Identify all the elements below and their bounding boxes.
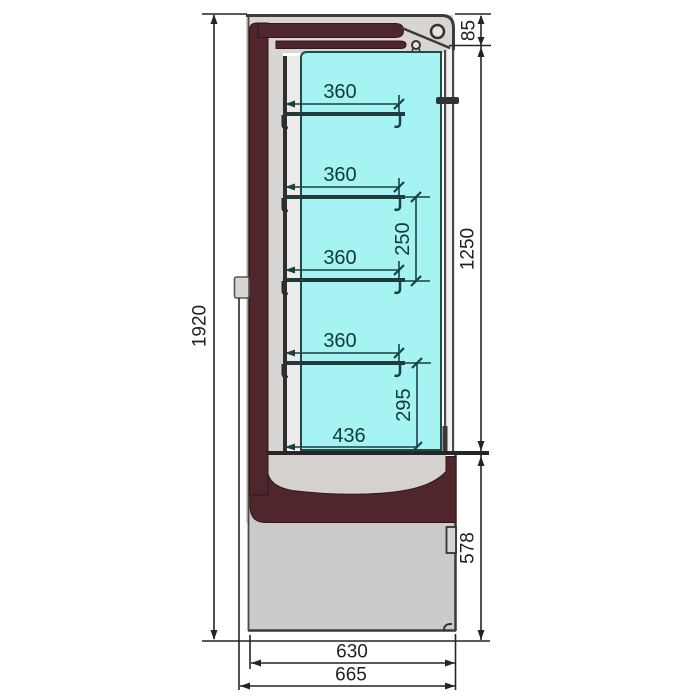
cabinet-structure (235, 14, 490, 631)
dim-label-shelf-1: 360 (323, 81, 356, 103)
back-wall-insulation (250, 23, 269, 495)
dim-label-shelf-3: 360 (323, 247, 356, 269)
canopy-trim-upper (258, 24, 404, 38)
dim-label-canopy-height: 85 (459, 20, 480, 41)
deck-line (266, 451, 489, 455)
door-bottom-rail (443, 426, 448, 452)
canopy-trim-lower (276, 41, 406, 49)
base-cabinet (249, 505, 455, 631)
dim-label-overall-depth: 665 (335, 665, 367, 686)
dim-label-shelf-4: 360 (323, 330, 356, 352)
dim-label-bottom-shelf: 436 (332, 425, 365, 447)
dim-label-base-depth: 630 (336, 642, 368, 663)
dim-label-lower-gap: 295 (393, 388, 415, 421)
technical-drawing-page: 1920 85 1250 578 (0, 0, 700, 700)
blind-roller-icon (431, 25, 444, 38)
back-liner-line (283, 56, 287, 452)
keyhole-detail-icon (412, 41, 420, 49)
door-hinge (436, 97, 459, 104)
rear-spacer-bumper (235, 277, 250, 298)
dim-door-height: 1250 (458, 46, 485, 452)
interior-chamber (301, 52, 441, 450)
glass-door-outer (452, 50, 454, 452)
dim-label-base-height: 578 (458, 532, 479, 564)
cabinet-section-drawing: 1920 85 1250 578 (0, 0, 700, 700)
dim-label-overall-height: 1920 (190, 305, 211, 347)
dim-label-shelf-2: 360 (323, 164, 356, 186)
glass-door-inner (444, 50, 446, 452)
base-access-panel (447, 527, 457, 553)
glass-door-cavity (446, 50, 452, 452)
dim-label-shelf-gap: 250 (392, 222, 414, 255)
dim-base-height: 578 (458, 455, 485, 640)
dim-canopy-height: 85 (449, 14, 491, 46)
dim-label-door-height: 1250 (458, 228, 479, 270)
